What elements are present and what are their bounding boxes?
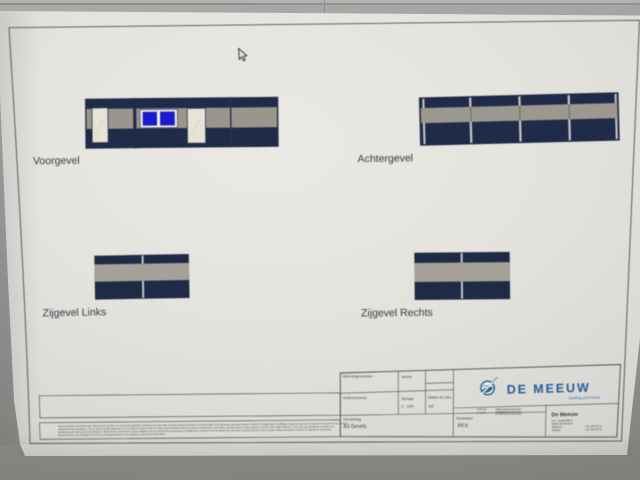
svg-text:PFX: PFX <box>458 424 469 430</box>
svg-text:De Meeuw: De Meeuw <box>551 412 578 419</box>
svg-text:benaming: benaming <box>343 416 361 421</box>
svg-text:Bouwdeel:: Bouwdeel: <box>457 416 474 420</box>
svg-text:versie: versie <box>401 374 412 379</box>
svg-text:1 : 100: 1 : 100 <box>401 404 414 409</box>
svg-text:Achtergevel: Achtergevel <box>358 152 414 165</box>
svg-text:E-mail: E-mail <box>477 410 486 414</box>
svg-text:DE MEEUW: DE MEEUW <box>507 381 591 397</box>
svg-text:Maten in mm.: Maten in mm. <box>428 395 452 400</box>
svg-text:A3: A3 <box>429 404 435 409</box>
svg-text:building your future: building your future <box>569 395 600 400</box>
svg-text:+31 499.55.40: +31 499.55.40 <box>585 427 603 431</box>
svg-text:A3 Gevels: A3 Gevels <box>343 424 367 430</box>
svg-text:Zijgevel Rechts: Zijgevel Rechts <box>361 307 433 320</box>
svg-text:Voorgevel: Voorgevel <box>33 155 80 167</box>
svg-text:Telefax: Telefax <box>552 428 561 432</box>
svg-text:info@demeeuw.com: info@demeeuw.com <box>496 410 523 414</box>
svg-text:ordernummer: ordernummer <box>343 395 368 400</box>
svg-text:Zijgevel Links: Zijgevel Links <box>43 306 107 319</box>
svg-text:Schaal: Schaal <box>401 396 413 401</box>
svg-text:tekeningnummer: tekeningnummer <box>343 374 373 379</box>
svg-text:Bouwnummers zijn indicatief en: Bouwnummers zijn indicatief en kunnen ge… <box>58 433 167 437</box>
